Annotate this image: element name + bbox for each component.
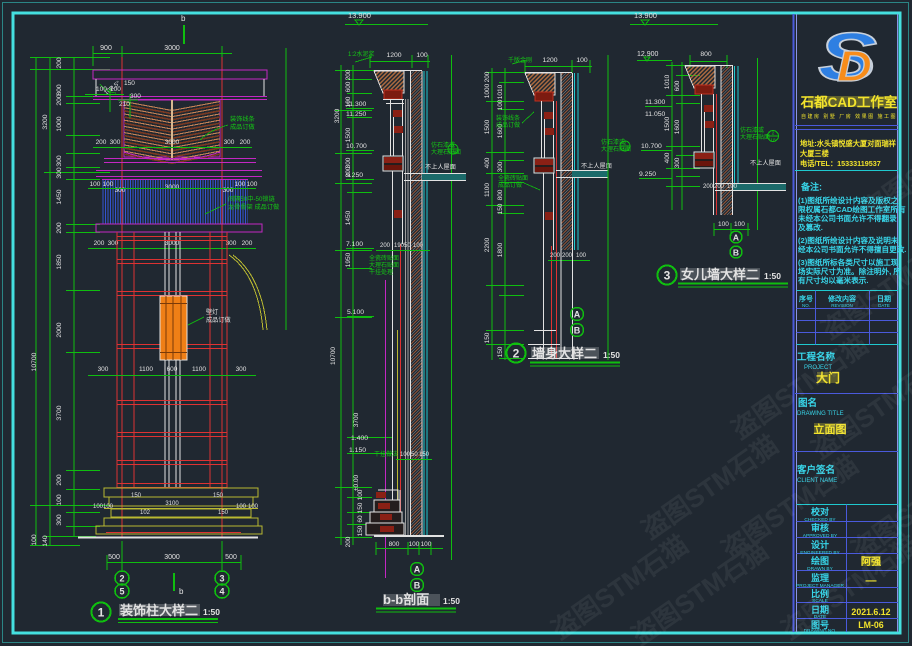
svg-text:200: 200 [94,240,105,247]
svg-text:150: 150 [497,346,504,357]
svg-text:1100: 1100 [484,183,491,197]
svg-text:3000: 3000 [165,240,180,247]
svg-text:150: 150 [419,452,430,458]
svg-text:1500: 1500 [345,127,352,142]
svg-text:1850: 1850 [56,254,63,269]
svg-text:1:50: 1:50 [443,596,460,606]
svg-text:1010: 1010 [664,74,671,89]
svg-text:石都CAD工作室: 石都CAD工作室 [800,94,898,110]
svg-text:1100: 1100 [192,366,206,373]
svg-text:审核: 审核 [811,522,829,533]
svg-text:140: 140 [42,535,49,547]
svg-text:200: 200 [56,94,63,106]
svg-text:200: 200 [484,71,491,82]
svg-text:1010: 1010 [497,84,504,99]
svg-text:5.100: 5.100 [347,309,364,316]
svg-text:800: 800 [56,84,63,96]
svg-text:A: A [733,233,739,243]
svg-text:200: 200 [562,253,573,259]
svg-text:大理石贴面: 大理石贴面 [369,261,399,269]
svg-text:A: A [574,310,581,320]
svg-text:10700: 10700 [330,347,337,365]
svg-text:100: 100 [103,181,114,188]
svg-text:地址:水头镇悦盛大厦对面瑞祥: 地址:水头镇悦盛大厦对面瑞祥 [800,139,897,148]
svg-text:不上人屋面: 不上人屋面 [581,162,612,170]
svg-text:150: 150 [497,203,504,214]
svg-text:100: 100 [31,534,38,546]
svg-text:1200: 1200 [542,57,557,64]
svg-text:及篡改.: 及篡改. [798,222,823,232]
svg-text:11.250: 11.250 [346,111,367,118]
svg-text:3000: 3000 [164,45,180,52]
svg-text:b: b [179,587,184,596]
svg-text:3000: 3000 [164,554,180,561]
svg-text:2: 2 [119,574,124,584]
svg-text:绘图: 绘图 [811,555,829,566]
svg-text:B: B [574,326,581,336]
svg-text:大理石贴面: 大理石贴面 [740,133,770,141]
svg-text:300: 300 [56,514,63,526]
svg-text:800: 800 [497,189,504,200]
svg-text:100: 100 [56,494,63,506]
svg-text:150: 150 [484,332,491,343]
svg-text:200: 200 [96,139,107,146]
svg-text:不上人屋面: 不上人屋面 [750,159,781,167]
svg-text:1.400: 1.400 [351,435,368,442]
svg-text:100: 100 [409,541,420,548]
svg-text:150: 150 [131,493,142,499]
svg-text:APPROVED BY: APPROVED BY [803,533,838,539]
svg-text:1200: 1200 [386,52,401,59]
svg-text:千版金刚: 千版金刚 [508,56,532,64]
svg-text:(3)图纸所标各类尺寸以施工现: (3)图纸所标各类尺寸以施工现 [798,257,899,267]
svg-text:200: 200 [380,243,391,249]
svg-text:200: 200 [345,536,352,547]
svg-text:900: 900 [100,45,112,52]
svg-text:200: 200 [550,253,561,259]
svg-text:300: 300 [223,187,234,194]
svg-text:600: 600 [345,81,352,92]
svg-text:DRAWING TITLE: DRAWING TITLE [797,411,844,417]
svg-text:3200: 3200 [334,108,341,123]
svg-text:100: 100 [96,86,107,93]
svg-text:1: 1 [98,606,105,620]
svg-text:200: 200 [714,184,725,190]
svg-text:100: 100 [110,86,121,93]
svg-text:11.050: 11.050 [645,111,666,118]
svg-text:2: 2 [624,141,627,147]
svg-text:100: 100 [718,221,729,228]
svg-text:300: 300 [56,167,63,179]
svg-text:女儿墙大样二: 女儿墙大样二 [681,267,759,282]
svg-text:1:50: 1:50 [603,350,620,360]
svg-text:成品订做: 成品订做 [496,121,520,129]
svg-text:100: 100 [727,184,738,190]
svg-text:100: 100 [497,99,504,110]
svg-text:全瓷砖贴面: 全瓷砖贴面 [498,174,528,182]
svg-text:装饰柱大样二: 装饰柱大样二 [119,603,198,618]
svg-text:200: 200 [56,222,63,234]
svg-text:1500: 1500 [484,119,491,134]
svg-text:3000: 3000 [165,184,180,191]
svg-text:壁灯: 壁灯 [206,308,218,316]
svg-text:300: 300 [674,157,681,168]
svg-text:电话/TEL：15333119537: 电话/TEL：15333119537 [800,159,881,168]
svg-text:500: 500 [225,554,237,561]
svg-text:DRAWN BY: DRAWN BY [807,566,833,572]
svg-text:100: 100 [103,504,114,510]
svg-text:600: 600 [674,80,681,91]
svg-text:大厦三楼: 大厦三楼 [800,149,830,158]
svg-text:600: 600 [167,366,178,373]
svg-text:装饰线条: 装饰线条 [230,115,255,123]
svg-text:150: 150 [213,493,224,499]
svg-text:A: A [414,565,421,575]
svg-text:成品订做: 成品订做 [206,316,231,324]
svg-text:13.900: 13.900 [634,11,657,20]
svg-text:100: 100 [576,57,588,64]
svg-text:1100: 1100 [139,366,153,373]
svg-text:300: 300 [115,187,126,194]
svg-text:150: 150 [218,510,229,516]
svg-text:仿石漆或: 仿石漆或 [740,126,764,134]
svg-text:1000: 1000 [56,116,63,131]
svg-text:300: 300 [236,366,247,373]
svg-text:干挂处理: 干挂处理 [369,268,393,276]
svg-text:400: 400 [664,152,671,163]
svg-text:300: 300 [130,93,141,100]
svg-text:100: 100 [235,181,246,188]
svg-text:2021.6.12: 2021.6.12 [851,607,890,617]
svg-text:100: 100 [734,221,745,228]
svg-text:100: 100 [400,452,411,458]
svg-text:18: 18 [770,138,776,144]
svg-text:备注:: 备注: [800,181,822,192]
svg-text:13.900: 13.900 [348,11,371,20]
svg-text:800: 800 [389,541,400,548]
svg-text:(2)图纸所绘设计内容及说明未: (2)图纸所绘设计内容及说明未 [798,235,899,245]
svg-text:2: 2 [452,144,455,150]
svg-text:300: 300 [110,139,121,146]
svg-text:2: 2 [513,347,520,361]
svg-text:1450: 1450 [56,189,63,204]
svg-text:300: 300 [98,366,109,373]
svg-text:1:50: 1:50 [203,607,220,617]
svg-text:1600: 1600 [674,119,681,134]
svg-text:200: 200 [242,240,253,247]
svg-text:B: B [733,248,739,258]
svg-text:50: 50 [404,243,411,249]
svg-text:3: 3 [219,574,224,584]
svg-text:干挂做法: 干挂做法 [374,450,398,458]
svg-text:1450: 1450 [345,210,352,225]
svg-text:10.700: 10.700 [641,143,662,150]
svg-text:200: 200 [345,69,352,80]
svg-text:9.250: 9.250 [639,171,656,178]
svg-text:100: 100 [416,52,428,59]
svg-text:50: 50 [411,452,418,458]
svg-text:b: b [181,14,186,23]
svg-text:2200: 2200 [484,237,491,252]
svg-text:100: 100 [413,243,424,249]
svg-text:1950: 1950 [345,252,352,267]
svg-text:3700: 3700 [56,405,63,420]
svg-text:500: 500 [108,554,120,561]
svg-text:200: 200 [56,474,63,486]
svg-text:1500: 1500 [664,116,671,131]
svg-text:1000: 1000 [484,83,491,98]
svg-text:自建房 别墅 厂房 效果图 施工图: 自建房 别墅 厂房 效果图 施工图 [801,113,897,120]
svg-text:1.150: 1.150 [349,447,366,454]
svg-text:B: B [414,581,421,591]
svg-text:1:50: 1:50 [764,271,781,281]
svg-text:200: 200 [703,184,714,190]
svg-text:300: 300 [56,155,63,167]
svg-text:±0.00: ±0.00 [353,475,360,492]
svg-text:序号: 序号 [798,294,813,303]
svg-text:100: 100 [90,181,101,188]
svg-text:100: 100 [248,504,259,510]
svg-text:3700: 3700 [353,412,360,427]
svg-text:3: 3 [664,269,671,283]
svg-text:1800: 1800 [497,242,504,257]
svg-text:210: 210 [119,101,130,108]
svg-text:设计: 设计 [811,539,829,550]
svg-text:10700: 10700 [31,352,38,371]
svg-text:有尺寸均以毫米表示.: 有尺寸均以毫米表示. [798,275,868,285]
svg-text:10.700: 10.700 [346,143,367,150]
svg-text:NO.: NO. [802,303,810,308]
svg-text:300: 300 [224,139,235,146]
svg-text:成品订做: 成品订做 [230,123,255,131]
svg-text:100: 100 [357,489,364,500]
svg-text:b-b剖面: b-b剖面 [383,592,429,607]
svg-text:150: 150 [357,525,364,536]
svg-text:3000: 3000 [165,139,180,146]
svg-text:150: 150 [124,80,135,87]
svg-text:D: D [837,41,872,90]
svg-text:LM-06: LM-06 [858,620,884,630]
svg-text:200: 200 [240,139,251,146]
svg-text:18: 18 [622,147,628,153]
svg-text:400: 400 [484,157,491,168]
svg-text:3200: 3200 [42,114,49,129]
svg-text:不上人屋面: 不上人屋面 [425,163,456,171]
svg-text:4: 4 [219,587,224,597]
svg-text:7.100: 7.100 [346,241,363,248]
svg-text:18: 18 [450,150,456,156]
svg-text:监理: 监理 [811,572,829,583]
svg-text:5: 5 [119,587,124,597]
svg-text:100: 100 [247,181,258,188]
svg-text:100: 100 [421,541,432,548]
svg-text:300: 300 [497,161,504,172]
svg-text:装饰线条: 装饰线条 [496,114,520,122]
svg-text:100: 100 [236,504,247,510]
svg-text:800: 800 [700,51,712,58]
svg-text:9.250: 9.250 [346,172,363,179]
svg-text:全瓷砖贴面: 全瓷砖贴面 [369,254,399,262]
svg-text:3100: 3100 [165,501,179,507]
svg-text:11.300: 11.300 [346,101,367,108]
svg-text:龙骨骨架 成品订做: 龙骨骨架 成品订做 [228,203,279,211]
svg-text:经本公司书面允许不得擅自更改.: 经本公司书面允许不得擅自更改. [798,244,906,254]
svg-text:100: 100 [576,253,587,259]
svg-text:2: 2 [772,131,775,137]
svg-text:102: 102 [140,510,151,516]
svg-text:150: 150 [357,502,364,513]
svg-text:11.300: 11.300 [645,99,666,106]
svg-text:间隔50中-50锁链: 间隔50中-50锁链 [228,195,276,203]
svg-text:墙身大样二: 墙身大样二 [532,346,597,361]
svg-text:200: 200 [56,57,63,69]
svg-text:成品订做: 成品订做 [498,181,522,189]
svg-text:60: 60 [357,515,364,523]
svg-text:2000: 2000 [56,322,63,337]
